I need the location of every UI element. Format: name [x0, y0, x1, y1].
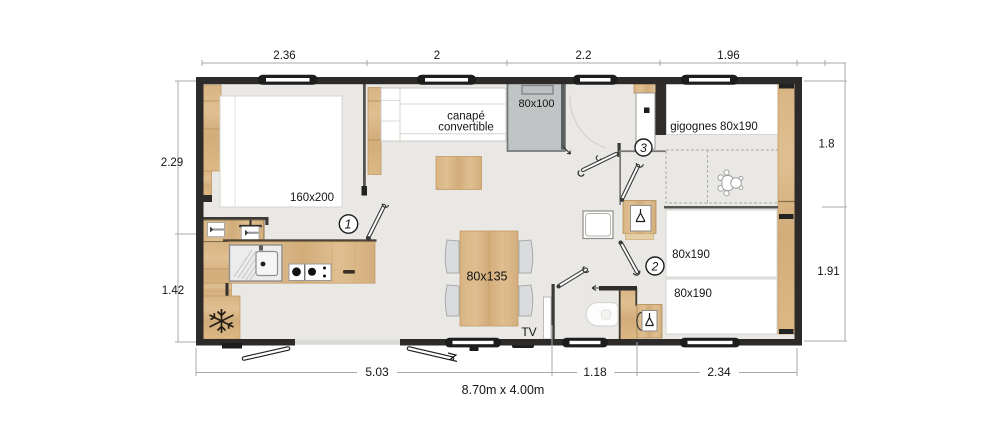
- svg-text:2.2: 2.2: [576, 50, 592, 62]
- svg-text:convertible: convertible: [438, 122, 494, 134]
- svg-text:1.96: 1.96: [717, 50, 739, 62]
- svg-text:2.34: 2.34: [707, 365, 731, 379]
- svg-text:2: 2: [434, 50, 440, 62]
- svg-text:TV: TV: [521, 325, 536, 339]
- svg-text:80x190: 80x190: [672, 249, 710, 261]
- svg-text:8.70m x 4.00m: 8.70m x 4.00m: [462, 383, 545, 397]
- svg-text:5.03: 5.03: [365, 365, 389, 379]
- svg-text:80x135: 80x135: [466, 270, 507, 284]
- svg-text:1.91: 1.91: [817, 266, 839, 278]
- svg-text:2.29: 2.29: [161, 157, 183, 169]
- svg-text:1.8: 1.8: [819, 139, 835, 151]
- svg-text:80x100: 80x100: [518, 98, 554, 110]
- svg-text:80x190: 80x190: [674, 288, 712, 300]
- svg-text:2.36: 2.36: [273, 50, 295, 62]
- svg-text:1: 1: [345, 218, 352, 232]
- svg-text:2: 2: [651, 260, 659, 274]
- svg-text:1.42: 1.42: [162, 285, 184, 297]
- svg-text:1.18: 1.18: [583, 365, 607, 379]
- svg-text:160x200: 160x200: [290, 192, 334, 204]
- svg-text:gigognes 80x190: gigognes 80x190: [670, 121, 758, 133]
- svg-text:3: 3: [640, 141, 647, 155]
